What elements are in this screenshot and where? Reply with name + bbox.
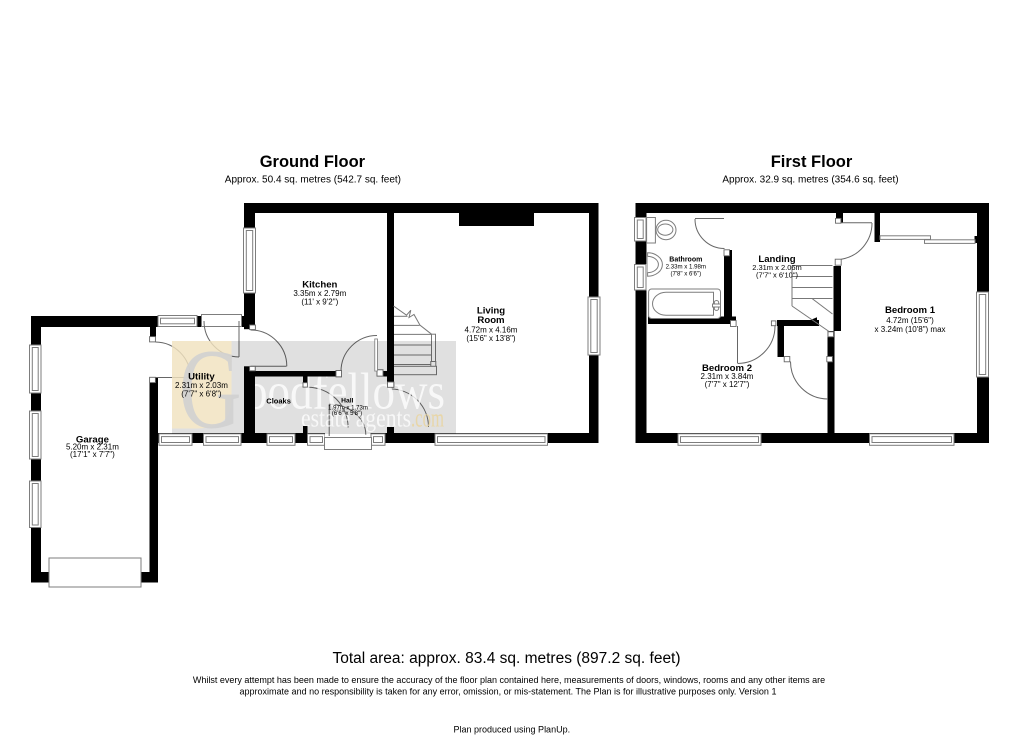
svg-text:approximate and no responsibil: approximate and no responsibility is tak…: [240, 687, 777, 697]
svg-text:(7'8" x 6'6"): (7'8" x 6'6"): [670, 270, 701, 277]
svg-text:Cloaks: Cloaks: [266, 396, 291, 405]
svg-text:Ground Floor: Ground Floor: [260, 153, 366, 171]
svg-text:x 3.24m (10'8") max: x 3.24m (10'8") max: [874, 325, 945, 334]
svg-text:Hall: Hall: [341, 398, 353, 405]
svg-text:First Floor: First Floor: [771, 153, 853, 171]
svg-text:Plan produced using PlanUp.: Plan produced using PlanUp.: [454, 725, 571, 735]
svg-text:Room: Room: [477, 315, 504, 326]
svg-text:Total area: approx. 83.4 sq. m: Total area: approx. 83.4 sq. metres (897…: [332, 650, 680, 667]
svg-text:Bedroom 1: Bedroom 1: [885, 305, 936, 316]
svg-text:(11' x 9'2"): (11' x 9'2"): [301, 298, 338, 307]
svg-text:Whilst every attempt has been: Whilst every attempt has been made to en…: [193, 675, 825, 685]
svg-text:(6'6" x 5'8"): (6'6" x 5'8"): [332, 411, 362, 417]
svg-text:(17'1" x 7'7"): (17'1" x 7'7"): [70, 450, 115, 459]
svg-text:Approx. 50.4 sq. metres (542.7: Approx. 50.4 sq. metres (542.7 sq. feet): [225, 174, 401, 185]
svg-text:(15'6" x 13'8"): (15'6" x 13'8"): [466, 334, 516, 343]
svg-text:4.72m (15'6"): 4.72m (15'6"): [886, 316, 934, 325]
svg-text:(7'7" x 6'8"): (7'7" x 6'8"): [181, 389, 222, 398]
svg-text:(7'7" x 12'7"): (7'7" x 12'7"): [705, 380, 750, 389]
svg-text:(7'7" x 6'10"): (7'7" x 6'10"): [756, 271, 798, 280]
svg-text:Approx. 32.9 sq. metres (354.6: Approx. 32.9 sq. metres (354.6 sq. feet): [722, 174, 898, 185]
svg-text:.com: .com: [411, 403, 444, 433]
